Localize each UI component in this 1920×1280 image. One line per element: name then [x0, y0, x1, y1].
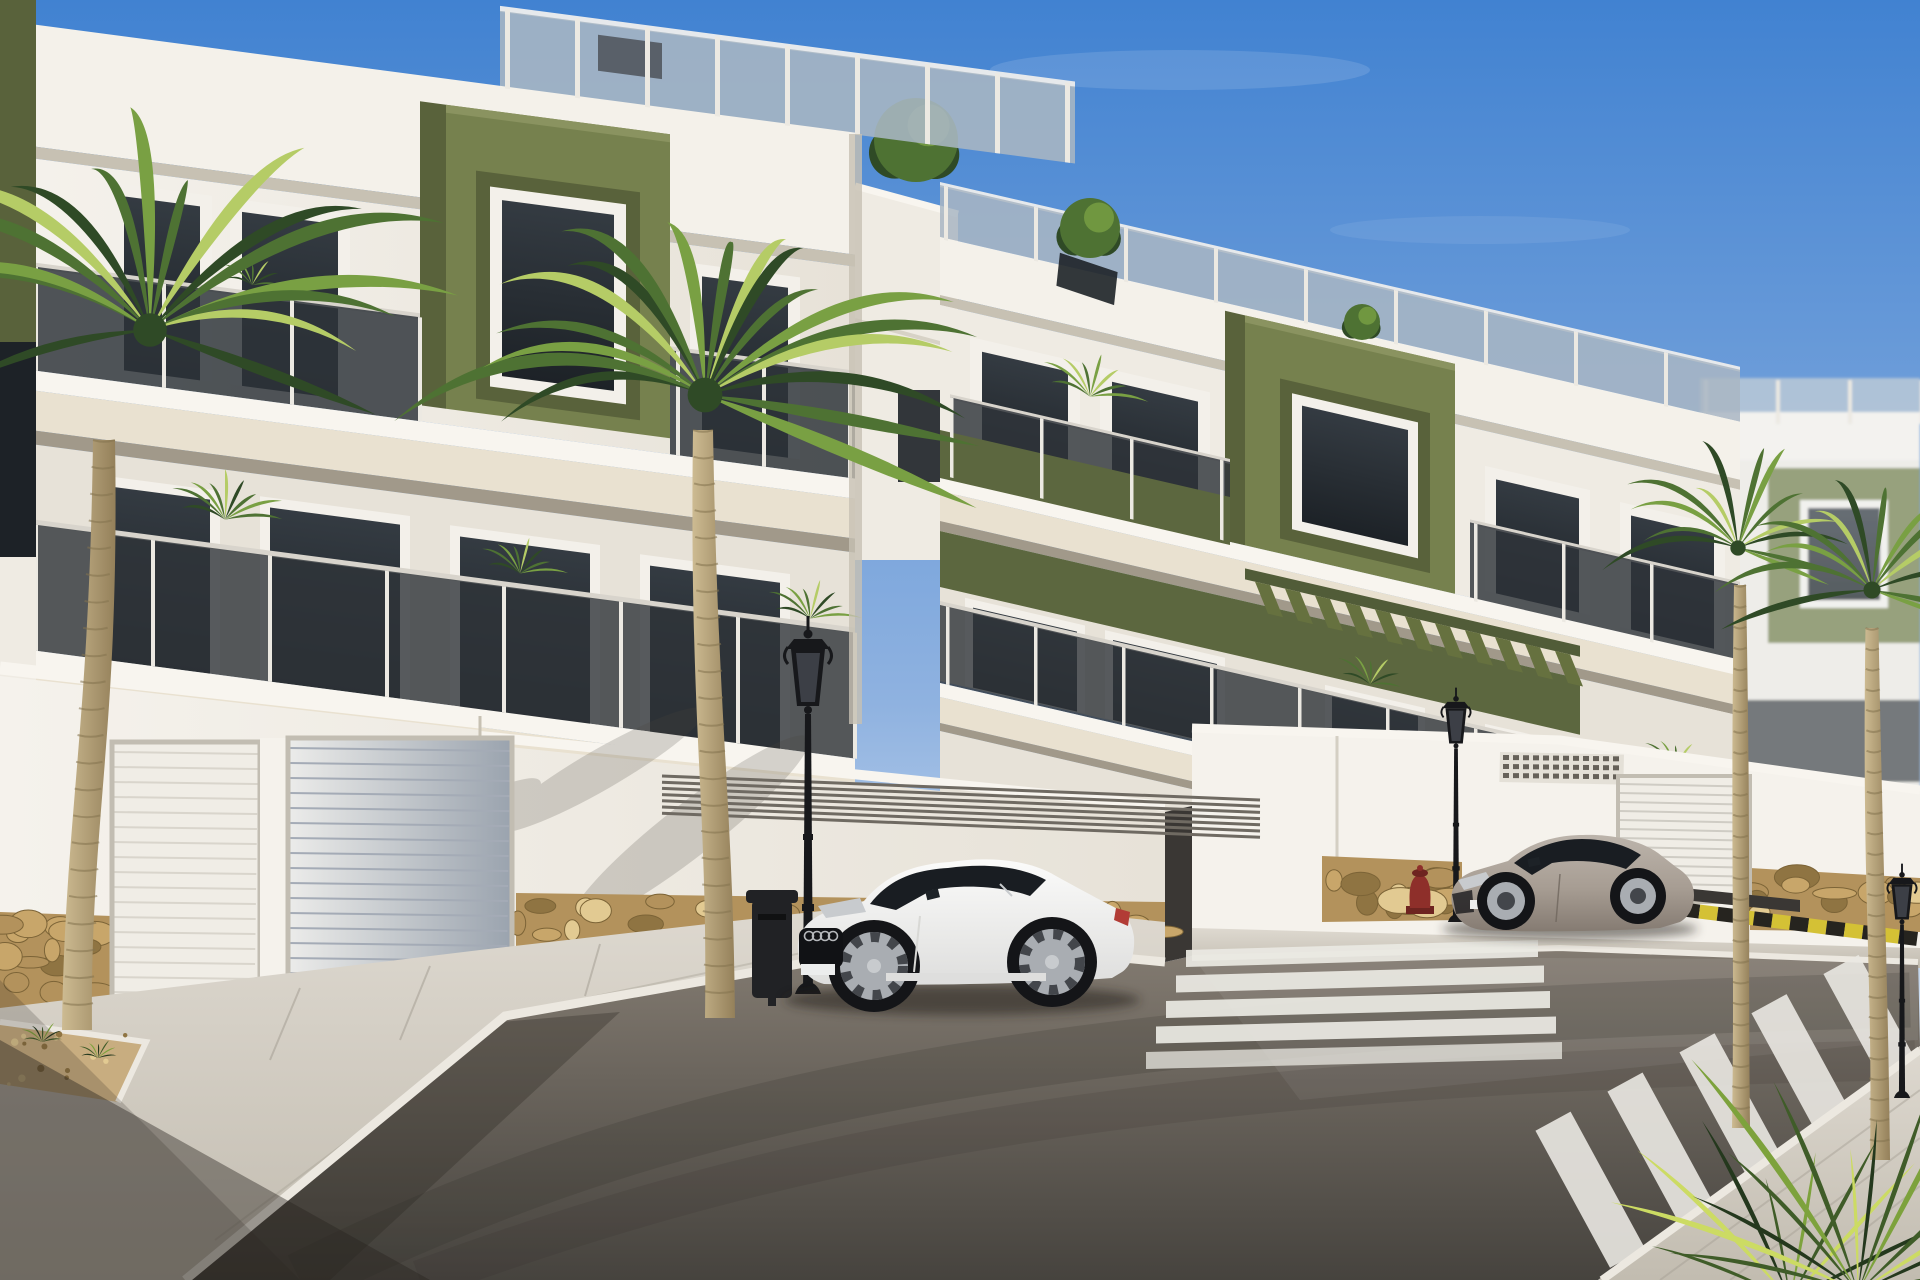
- bump-segment: [1789, 916, 1809, 932]
- grille-dash: [1563, 765, 1569, 770]
- balustrade-post: [151, 540, 155, 667]
- balustrade-post: [1034, 627, 1038, 706]
- grille-dash: [1603, 774, 1609, 779]
- green-volume-side: [420, 101, 446, 408]
- balustrade-post: [1034, 207, 1038, 262]
- balustrade-post: [1776, 380, 1780, 424]
- stone: [532, 928, 561, 941]
- grille-dash: [1563, 756, 1569, 761]
- balustrade-post: [785, 45, 790, 126]
- wheel-hub: [1497, 892, 1515, 910]
- grille-dash: [1513, 764, 1519, 769]
- balustrade-post: [944, 186, 948, 241]
- street-exterior-render: [0, 0, 1920, 1280]
- grille-dash: [1563, 774, 1569, 779]
- balustrade-post: [715, 36, 720, 117]
- balustrade-post: [855, 55, 860, 136]
- grille-dash: [1593, 765, 1599, 770]
- bin-lid: [746, 890, 798, 903]
- bin-slot: [758, 914, 786, 920]
- grille-dash: [1523, 755, 1529, 760]
- grille-dash: [1583, 756, 1589, 761]
- balustrade-post: [1214, 248, 1218, 303]
- grille-dash: [1533, 764, 1539, 769]
- balustrade-post: [676, 351, 680, 456]
- stone: [1782, 877, 1810, 893]
- balustrade-post: [946, 606, 950, 685]
- render-viewport: [0, 0, 1920, 1280]
- grille-dash: [1543, 755, 1549, 760]
- grille-dash: [1573, 765, 1579, 770]
- grille-dash: [1593, 756, 1599, 761]
- hydrant-knob: [1417, 865, 1423, 871]
- wheel-hub: [1630, 888, 1646, 904]
- balustrade-post: [995, 73, 1000, 154]
- garage-door-1: [111, 742, 260, 1006]
- grille-dash: [1503, 764, 1509, 769]
- grille-dash: [1513, 755, 1519, 760]
- vent-grille: [1499, 752, 1624, 785]
- balustrade-post: [645, 27, 650, 108]
- balustrade-post: [1130, 439, 1134, 520]
- building-corner-shade: [849, 134, 862, 724]
- palm-crown-core: [1730, 540, 1745, 555]
- grille-dash: [1613, 765, 1619, 770]
- balustrade-post: [925, 64, 930, 145]
- balustrade-post: [1650, 564, 1654, 643]
- sill: [886, 973, 1046, 981]
- balustrade-post: [1220, 460, 1224, 541]
- palm-crown-core: [688, 378, 723, 413]
- grille-dash: [1533, 755, 1539, 760]
- green-edge-strip: [0, 0, 36, 342]
- stone: [580, 899, 611, 923]
- grille-dash: [1513, 773, 1519, 778]
- balustrade-post: [1040, 418, 1044, 499]
- grille-dash: [1523, 773, 1529, 778]
- tree-foliage: [1084, 203, 1114, 233]
- wheel-hub: [1045, 955, 1059, 969]
- bump-segment: [1698, 905, 1718, 921]
- stone: [525, 899, 556, 914]
- balustrade-post: [268, 555, 272, 682]
- grille-dash: [1613, 756, 1619, 761]
- grille-dash: [1583, 774, 1589, 779]
- bump-segment: [1844, 923, 1864, 939]
- license-plate: [801, 964, 835, 975]
- palm-crown-core: [1863, 581, 1880, 598]
- balustrade-post: [418, 317, 422, 422]
- balustrade-post: [1574, 331, 1578, 386]
- grille-dash: [1603, 765, 1609, 770]
- grille-dash: [1543, 773, 1549, 778]
- bump-segment: [1825, 921, 1845, 937]
- door-pier: [260, 738, 288, 1006]
- edge-glass: [0, 342, 36, 557]
- grille-dash: [1503, 773, 1509, 778]
- bump-segment: [1753, 911, 1773, 927]
- balustrade-post: [1474, 523, 1478, 602]
- grille-dash: [1503, 755, 1509, 760]
- balustrade-post: [619, 601, 623, 728]
- stone: [646, 894, 675, 909]
- stone: [1326, 870, 1342, 891]
- trash-bin: [746, 890, 798, 1006]
- grille-dash: [1553, 774, 1559, 779]
- cloud: [1330, 216, 1630, 244]
- grille-dash: [1583, 765, 1589, 770]
- bump-segment: [1807, 918, 1827, 934]
- wheel-hub: [867, 959, 881, 973]
- stone: [565, 920, 580, 941]
- grille-dash: [1523, 764, 1529, 769]
- balustrade-post: [1848, 380, 1852, 424]
- bump-segment: [1771, 914, 1791, 930]
- window-glass: [1302, 406, 1408, 546]
- stone: [1813, 888, 1857, 900]
- grille-dash: [1553, 765, 1559, 770]
- balustrade-post: [1304, 269, 1308, 324]
- grille-dash: [1603, 756, 1609, 761]
- balustrade-post: [1664, 352, 1668, 407]
- balustrade-post: [1394, 290, 1398, 345]
- stone: [1341, 872, 1380, 895]
- gravel-stone: [123, 1033, 127, 1037]
- balustrade-post: [1484, 311, 1488, 366]
- grille-dash: [1533, 773, 1539, 778]
- balustrade-post: [505, 8, 510, 89]
- grille-dash: [1593, 774, 1599, 779]
- balustrade-post: [736, 617, 740, 744]
- palm-crown-core: [133, 313, 167, 347]
- balustrade-post: [1562, 544, 1566, 623]
- balustrade-post: [1065, 82, 1070, 163]
- balustrade-post: [385, 571, 389, 698]
- stone: [44, 939, 60, 962]
- grille-dash: [1553, 756, 1559, 761]
- balustrade-post: [1122, 647, 1126, 726]
- balustrade-post: [1124, 227, 1128, 282]
- grille-dash: [1573, 774, 1579, 779]
- balustrade-post: [290, 300, 294, 405]
- grille-dash: [1573, 756, 1579, 761]
- balustrade-post: [502, 586, 506, 713]
- balustrade-post: [575, 18, 580, 99]
- gravel-stone: [103, 1058, 108, 1063]
- tree-foliage: [1358, 307, 1376, 325]
- grille-dash: [1543, 764, 1549, 769]
